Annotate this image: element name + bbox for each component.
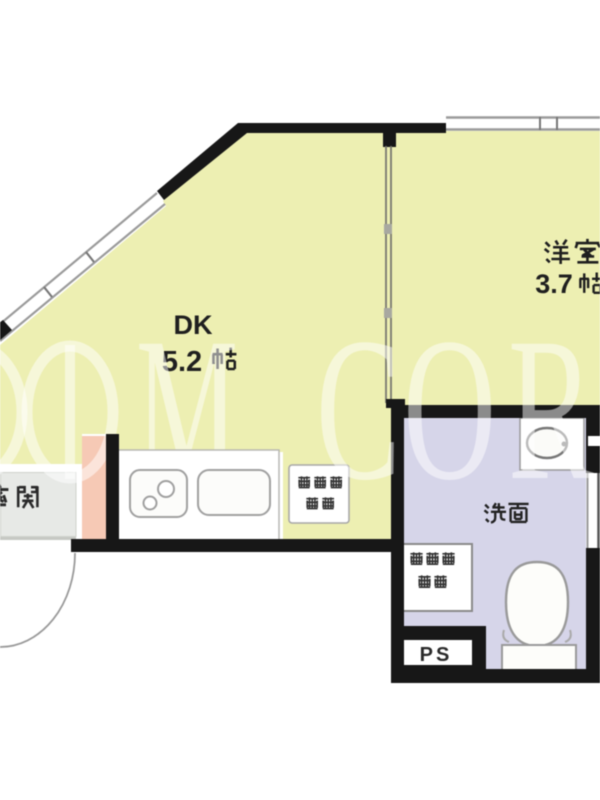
svg-text:PS: PS <box>420 644 453 666</box>
svg-text:3.7: 3.7 <box>535 269 573 299</box>
svg-text:R: R <box>508 296 595 523</box>
svg-text:O: O <box>403 296 496 523</box>
svg-text:C: C <box>316 295 401 522</box>
svg-text:DK: DK <box>174 310 213 340</box>
